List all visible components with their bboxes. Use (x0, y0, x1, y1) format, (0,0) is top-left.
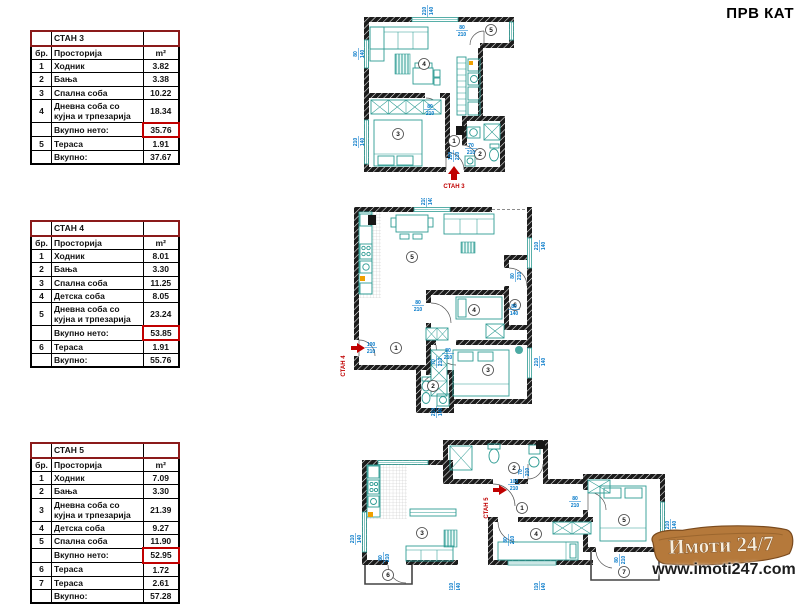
living-furniture-group (406, 509, 457, 561)
room-number-badge: 6 (383, 570, 394, 581)
table-row: 5Спална соба11.90 (31, 535, 179, 549)
svg-text:140: 140 (456, 583, 462, 590)
room-number-badge: 2 (475, 149, 486, 160)
room-number-badge: 5 (407, 252, 418, 263)
cell-blank (143, 443, 179, 458)
svg-text:80: 80 (353, 51, 359, 57)
cell-num: 5 (31, 137, 52, 151)
cell-room: Дневна соба со кујна и трпезарија (52, 498, 144, 521)
svg-text:210: 210 (426, 111, 435, 117)
cell-blank (143, 31, 179, 46)
svg-text:210: 210 (510, 536, 516, 545)
svg-text:210: 210 (449, 583, 455, 590)
svg-text:3: 3 (486, 367, 490, 374)
dimension-label: 80210 (412, 300, 424, 313)
room-number-badges: 5 4 3 1 2 6 (391, 252, 521, 392)
cell-area: 3.82 (143, 60, 179, 73)
svg-text:80: 80 (378, 555, 384, 561)
grand-total-label: Вкупно: (52, 151, 144, 165)
cell-room: Тераса (52, 576, 144, 589)
col-header-area: m² (143, 458, 179, 472)
grand-total-row: Вкупно:37.67 (31, 151, 179, 165)
svg-text:5: 5 (489, 27, 493, 34)
entrance-marker: СТАН 4 (341, 343, 365, 377)
room-number-badge: 4 (419, 59, 430, 70)
cell-area: 8.05 (143, 289, 179, 302)
net-total-label: Вкупно нето: (52, 123, 144, 137)
watermark-url[interactable]: www.imoti247.com (650, 561, 798, 579)
cell-num: 7 (31, 576, 52, 589)
dimension-label: 210140 (422, 5, 435, 17)
col-header-num: бр. (31, 236, 52, 250)
svg-text:210: 210 (534, 583, 540, 590)
cell-room: Спална соба (52, 86, 144, 99)
svg-text:140: 140 (429, 7, 435, 16)
floorplan-stan3: 5 4 3 1 2 210140 80140 210140 80210 8021… (350, 4, 524, 192)
sink-icon (529, 457, 539, 467)
cell-blank (31, 548, 52, 562)
cell-blank (31, 443, 52, 458)
svg-text:100: 100 (367, 342, 376, 348)
cell-area: 11.25 (143, 276, 179, 289)
cell-room: Детска соба (52, 521, 144, 534)
svg-text:4: 4 (422, 61, 426, 68)
svg-text:1: 1 (452, 138, 456, 145)
cell-area: 2.61 (143, 576, 179, 589)
svg-text:210: 210 (467, 150, 476, 156)
svg-text:210: 210 (455, 152, 461, 161)
room-number-badge: 3 (417, 528, 428, 539)
cell-room: Дневна соба со кујна и трпезарија (52, 302, 144, 325)
svg-text:210: 210 (517, 272, 523, 281)
svg-text:80: 80 (503, 537, 509, 543)
room-number-badge: 1 (391, 343, 402, 354)
terrace-outlines (365, 552, 659, 584)
living-furniture-group (370, 27, 440, 85)
bathroom-fixtures-group (450, 441, 545, 470)
cell-num: 2 (31, 73, 52, 86)
svg-text:80: 80 (511, 304, 517, 310)
grand-total-label: Вкупно: (52, 589, 144, 603)
cell-blank (143, 221, 179, 236)
table-header-row: бр. Просторија m² (31, 458, 179, 472)
svg-text:210: 210 (438, 358, 444, 367)
svg-text:3: 3 (420, 530, 424, 537)
cell-room: Дневна соба со кујна и трпезарија (52, 99, 144, 122)
cell-room: Спална соба (52, 535, 144, 549)
cell-area: 3.30 (143, 263, 179, 276)
col-header-room: Просторија (52, 236, 144, 250)
room-number-badge: 3 (393, 129, 404, 140)
dimension-label: 80210 (510, 270, 523, 282)
svg-text:80: 80 (427, 104, 433, 110)
table-row: 2Бања3.30 (31, 263, 179, 276)
table-row: 4Детска соба9.27 (31, 521, 179, 534)
electrical-panel-icon (368, 215, 376, 225)
room-number-badge: 7 (619, 567, 630, 578)
plant-icon (515, 346, 523, 354)
cell-room: Ходник (52, 250, 144, 263)
svg-text:80: 80 (510, 273, 516, 279)
kitchen-group (367, 465, 407, 519)
cell-num: 2 (31, 263, 52, 276)
svg-text:210: 210 (525, 468, 531, 477)
svg-text:80: 80 (445, 348, 451, 354)
svg-text:70: 70 (468, 143, 474, 149)
table-row: 3Дневна соба со кујна и трпезарија21.39 (31, 498, 179, 521)
net-total-value: 53.85 (143, 326, 179, 340)
kitchen-group (359, 212, 381, 298)
boiler-icon (360, 276, 365, 281)
table-row: 3Спална соба10.22 (31, 86, 179, 99)
cell-num: 4 (31, 289, 52, 302)
dimension-label: 80210 (503, 534, 516, 546)
table-header-row: бр. Просторија m² (31, 236, 179, 250)
col-header-num: бр. (31, 46, 52, 60)
dimension-label: 80210 (569, 496, 581, 509)
svg-text:140: 140 (438, 408, 444, 417)
cell-blank (31, 221, 52, 236)
apartment-name: СТАН 5 (52, 443, 144, 458)
dimension-label: 210140 (534, 581, 547, 590)
net-total-row: Вкупно нето:53.85 (31, 326, 179, 340)
svg-text:210: 210 (444, 355, 453, 361)
cell-area: 1.91 (143, 340, 179, 354)
table-row: 2Бања3.38 (31, 73, 179, 86)
svg-text:80: 80 (572, 496, 578, 502)
cell-num: 3 (31, 86, 52, 99)
tv-unit-icon (444, 530, 457, 547)
svg-text:70: 70 (431, 359, 437, 365)
svg-text:3: 3 (396, 131, 400, 138)
grand-total-value: 37.67 (143, 151, 179, 165)
col-header-area: m² (143, 46, 179, 60)
entrance-marker: СТАН 3 (443, 166, 465, 190)
svg-text:210: 210 (350, 535, 356, 544)
svg-text:5: 5 (410, 254, 414, 261)
sink-icon (470, 129, 478, 137)
boiler-icon (368, 512, 373, 517)
apartment-name: СТАН 4 (52, 221, 144, 236)
svg-text:2: 2 (431, 383, 435, 390)
cell-num: 3 (31, 498, 52, 521)
cell-room: Тераса (52, 563, 144, 577)
cell-room: Детска соба (52, 289, 144, 302)
room-number-badge: 2 (428, 381, 439, 392)
svg-text:210: 210 (431, 408, 437, 417)
net-total-label: Вкупно нето: (52, 548, 144, 562)
dimension-label: 80210 (456, 25, 468, 38)
col-header-num: бр. (31, 458, 52, 472)
svg-text:140: 140 (428, 198, 434, 205)
cell-room: Тераса (52, 340, 144, 354)
grand-total-value: 57.28 (143, 589, 179, 603)
cell-num: 1 (31, 250, 52, 263)
table-row: 6Тераса1.91 (31, 340, 179, 354)
dimension-label: 70210 (518, 466, 531, 478)
dimension-label: 210140 (534, 240, 547, 252)
svg-text:210: 210 (385, 554, 391, 563)
col-header-room: Просторија (52, 46, 144, 60)
svg-text:4: 4 (472, 307, 476, 314)
cell-blank (31, 354, 52, 368)
table-row: 2Бања3.30 (31, 485, 179, 498)
grand-total-row: Вкупно:57.28 (31, 589, 179, 603)
col-header-room: Просторија (52, 458, 144, 472)
svg-text:210: 210 (571, 503, 580, 509)
cell-room: Бања (52, 73, 144, 86)
cell-num: 4 (31, 521, 52, 534)
svg-text:80: 80 (415, 300, 421, 306)
svg-text:140: 140 (541, 358, 547, 367)
svg-text:7: 7 (622, 569, 626, 576)
net-total-value: 35.76 (143, 123, 179, 137)
svg-text:5: 5 (622, 517, 626, 524)
table-row: 5Дневна соба со кујна и трпезарија23.24 (31, 302, 179, 325)
svg-text:100: 100 (510, 479, 519, 485)
table-row: СТАН 3 (31, 31, 179, 46)
svg-text:210: 210 (621, 556, 627, 565)
svg-text:80: 80 (614, 557, 620, 563)
cell-area: 7.09 (143, 472, 179, 485)
svg-text:210: 210 (458, 32, 467, 38)
floorplan-stan4: 5 4 3 1 2 6 210140 210140 80210 80140 80… (338, 198, 550, 418)
cell-num: 2 (31, 485, 52, 498)
entrance-arrow-icon (351, 343, 365, 353)
bedroom-furniture-group (588, 480, 646, 541)
col-header-area: m² (143, 236, 179, 250)
svg-text:140: 140 (541, 583, 547, 590)
cell-area: 8.01 (143, 250, 179, 263)
cell-room: Тераса (52, 137, 144, 151)
dimension-label: 210140 (350, 533, 363, 545)
room-number-badge: 1 (517, 503, 528, 514)
electrical-panel-icon (536, 441, 545, 449)
toilet-icon (422, 393, 430, 404)
svg-text:210: 210 (421, 198, 427, 205)
room-number-badge: 1 (449, 136, 460, 147)
area-table-stan3: СТАН 3 бр. Просторија m² 1Ходник3.82 2Ба… (30, 30, 180, 165)
room-number-badge: 5 (486, 25, 497, 36)
svg-text:1: 1 (520, 505, 524, 512)
walls-group (364, 17, 514, 172)
living-furniture-group (391, 214, 494, 253)
cell-num: 6 (31, 563, 52, 577)
svg-text:140: 140 (541, 242, 547, 251)
grand-total-row: Вкупно:55.76 (31, 354, 179, 368)
area-table-stan5: СТАН 5 бр. Просторија m² 1Ходник7.09 2Ба… (30, 442, 180, 604)
tv-unit-icon (395, 54, 410, 74)
apartment-label: СТАН 3 (443, 184, 465, 190)
svg-text:210: 210 (534, 358, 540, 367)
watermark-brand: Имоти 24/7 (668, 531, 774, 559)
svg-text:2: 2 (512, 465, 516, 472)
svg-text:100: 100 (448, 152, 454, 161)
svg-text:4: 4 (534, 531, 538, 538)
svg-text:210: 210 (367, 349, 376, 355)
table-row: 6Тераса1.72 (31, 563, 179, 577)
cell-area: 10.22 (143, 86, 179, 99)
room-number-badge: 4 (469, 305, 480, 316)
svg-text:210: 210 (534, 242, 540, 251)
cell-blank (31, 151, 52, 165)
svg-text:210: 210 (510, 486, 519, 492)
cell-blank (31, 123, 52, 137)
svg-text:70: 70 (518, 469, 524, 475)
cell-room: Бања (52, 485, 144, 498)
cell-room: Бања (52, 263, 144, 276)
kitchen-group (456, 57, 480, 135)
net-total-row: Вкупно нето:35.76 (31, 123, 179, 137)
boiler-icon (469, 61, 473, 65)
table-row: 5Тераса1.91 (31, 137, 179, 151)
apartment-label: СТАН 5 (484, 497, 490, 519)
svg-text:6: 6 (386, 572, 390, 579)
cell-area: 11.90 (143, 535, 179, 549)
cell-area: 1.72 (143, 563, 179, 577)
svg-text:80: 80 (459, 25, 465, 31)
grand-total-value: 55.76 (143, 354, 179, 368)
area-table-stan4: СТАН 4 бр. Просторија m² 1Ходник8.01 2Ба… (30, 220, 180, 368)
table-row: 3Спална соба11.25 (31, 276, 179, 289)
cell-area: 3.38 (143, 73, 179, 86)
cell-num: 5 (31, 302, 52, 325)
dimension-label: 100210 (365, 342, 377, 355)
entrance-arrow-icon (493, 485, 507, 495)
cell-room: Спална соба (52, 276, 144, 289)
table-row: СТАН 4 (31, 221, 179, 236)
page-title: ПРВ КАТ (686, 5, 794, 22)
windows-group (365, 18, 514, 165)
table-row: 4Детска соба8.05 (31, 289, 179, 302)
tv-unit-icon (461, 242, 475, 253)
table-row: 1Ходник8.01 (31, 250, 179, 263)
cell-area: 9.27 (143, 521, 179, 534)
entrance-arrow-icon (448, 166, 460, 180)
cell-area: 18.34 (143, 99, 179, 122)
apartment-name: СТАН 3 (52, 31, 144, 46)
dimension-label: 210140 (449, 581, 462, 590)
svg-text:1: 1 (394, 345, 398, 352)
room-number-badge: 5 (619, 515, 630, 526)
kids-room-group (426, 297, 504, 340)
svg-text:210: 210 (414, 307, 423, 313)
floorplan-stan5: 3 1 2 4 5 6 7 100210 70210 80210 80210 2… (348, 432, 678, 590)
cell-blank (31, 31, 52, 46)
electrical-panel-icon (456, 126, 464, 135)
cell-room: Ходник (52, 472, 144, 485)
cell-num: 1 (31, 60, 52, 73)
cell-num: 5 (31, 535, 52, 549)
table-row: 1Ходник7.09 (31, 472, 179, 485)
net-total-value: 52.95 (143, 548, 179, 562)
cell-num: 3 (31, 276, 52, 289)
cell-area: 23.24 (143, 302, 179, 325)
svg-text:140: 140 (360, 138, 366, 147)
table-row: 1Ходник3.82 (31, 60, 179, 73)
grand-total-label: Вкупно: (52, 354, 144, 368)
dimension-label: 210140 (421, 198, 434, 207)
cell-num: 4 (31, 99, 52, 122)
cell-blank (31, 326, 52, 340)
table-header-row: бр. Просторија m² (31, 46, 179, 60)
table-row: 4Дневна соба со кујна и трпезарија18.34 (31, 99, 179, 122)
net-total-label: Вкупно нето: (52, 326, 144, 340)
entrance-marker: СТАН 5 (484, 485, 507, 519)
cell-num: 1 (31, 472, 52, 485)
room-number-badge: 4 (531, 529, 542, 540)
net-total-row: Вкупно нето:52.95 (31, 548, 179, 562)
table-row: СТАН 5 (31, 443, 179, 458)
room-number-badge: 3 (483, 365, 494, 376)
dimension-label: 210140 (534, 356, 547, 368)
cell-area: 1.91 (143, 137, 179, 151)
toilet-icon (490, 149, 499, 161)
svg-text:210: 210 (422, 7, 428, 16)
svg-text:140: 140 (510, 311, 519, 317)
svg-text:140: 140 (357, 535, 363, 544)
washer-icon (465, 156, 475, 166)
cell-area: 3.30 (143, 485, 179, 498)
cell-num: 6 (31, 340, 52, 354)
svg-text:210: 210 (353, 138, 359, 147)
svg-text:2: 2 (478, 151, 482, 158)
dimension-label: 80210 (614, 554, 627, 566)
apartment-label: СТАН 4 (341, 355, 347, 377)
svg-text:140: 140 (360, 50, 366, 59)
toilet-icon (489, 449, 499, 463)
cell-room: Ходник (52, 60, 144, 73)
table-row: 7Тераса2.61 (31, 576, 179, 589)
cell-area: 21.39 (143, 498, 179, 521)
dimension-label: 210140 (431, 406, 444, 418)
cell-blank (31, 589, 52, 603)
floorplan-sheet: { "page": { "title": "ПРВ КАТ" }, "water… (0, 0, 800, 600)
